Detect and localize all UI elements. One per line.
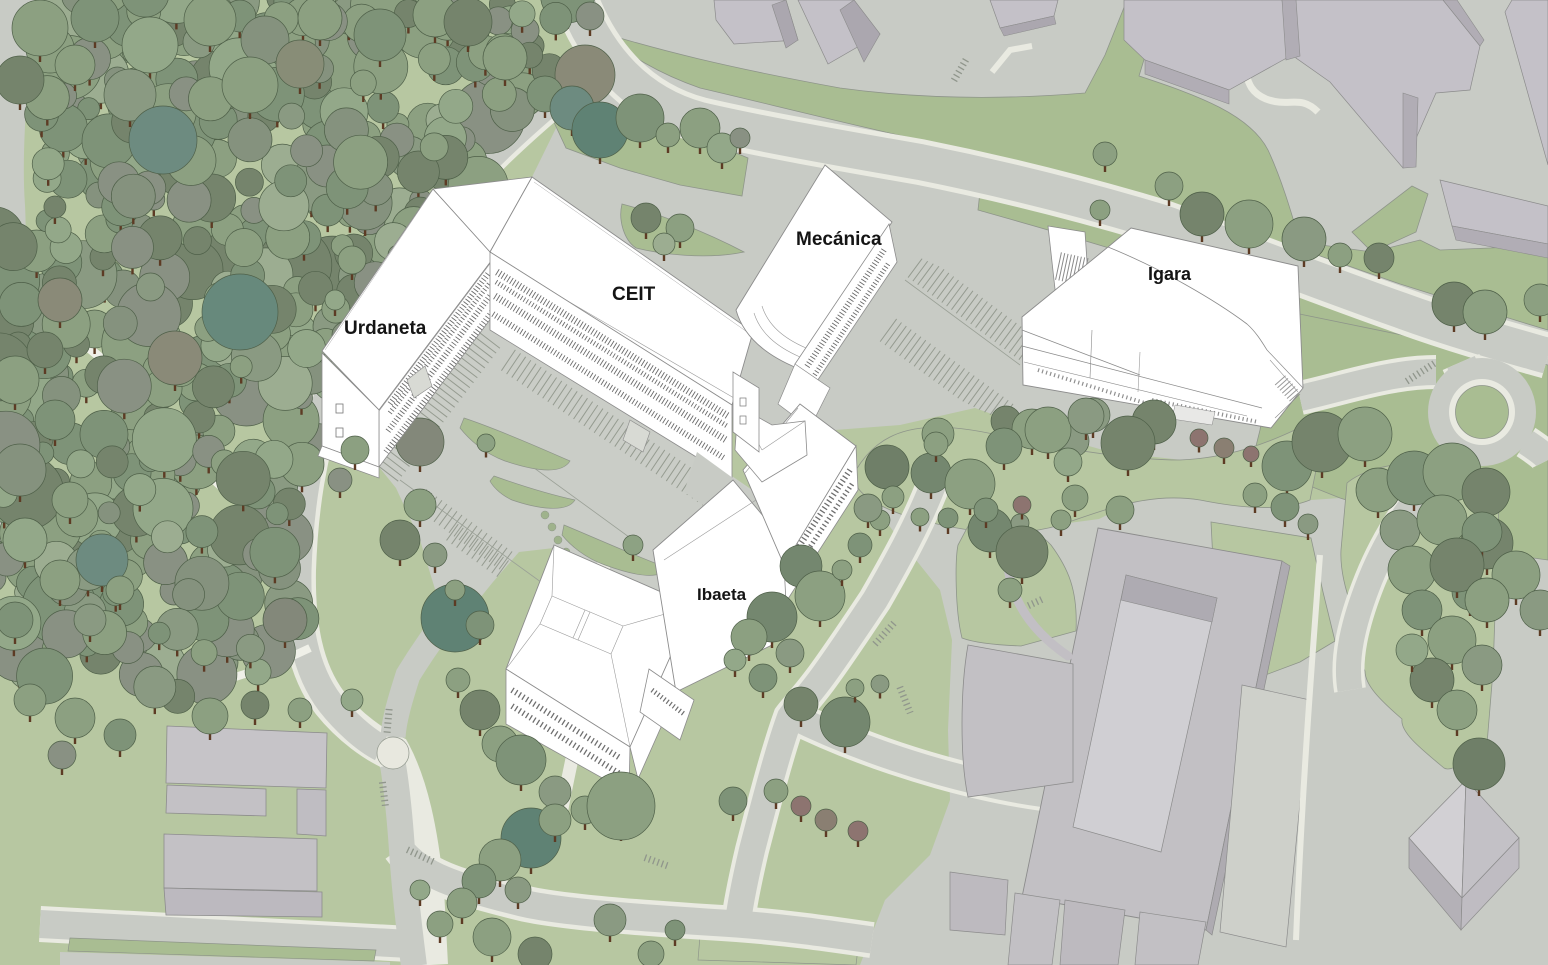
svg-text:Urdaneta: Urdaneta [344, 318, 427, 339]
svg-text:Igara: Igara [1148, 264, 1192, 284]
svg-text:CEIT: CEIT [612, 284, 656, 305]
svg-text:Mecánica: Mecánica [796, 229, 882, 250]
svg-text:Ibaeta: Ibaeta [697, 585, 747, 604]
